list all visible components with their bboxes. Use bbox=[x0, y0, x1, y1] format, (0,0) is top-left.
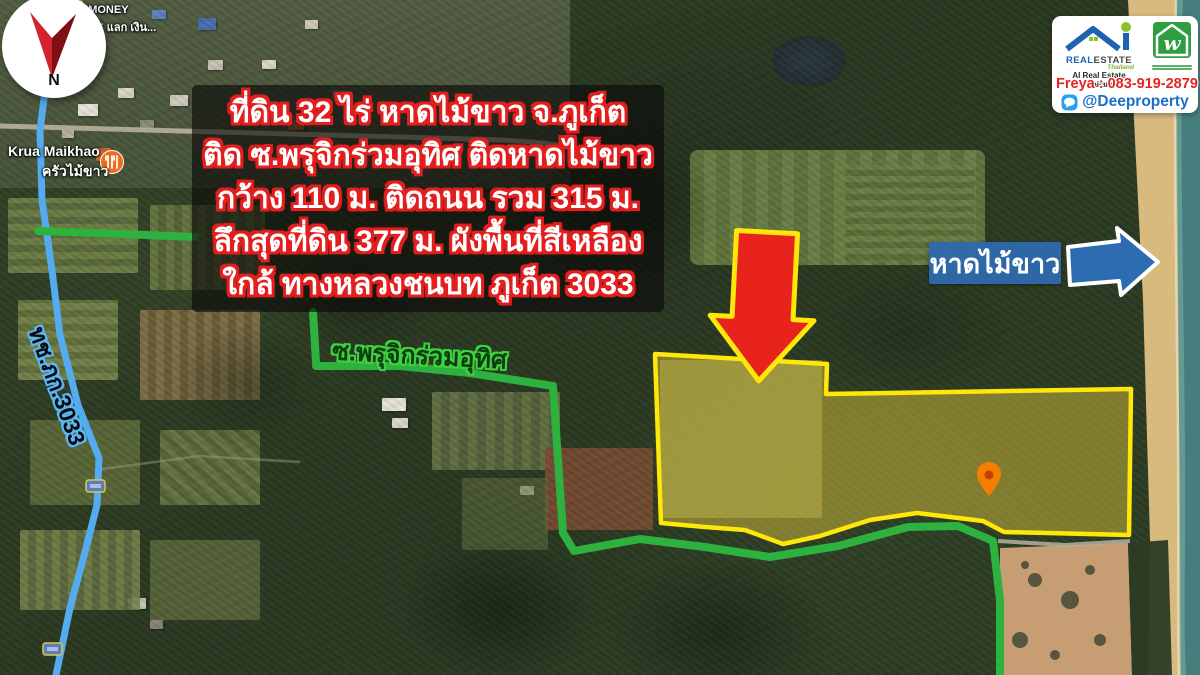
w-letter: w bbox=[1163, 31, 1181, 55]
w-logo-subtext-line bbox=[1152, 68, 1192, 70]
poi-restaurant-name-en: Krua Maikhao bbox=[8, 143, 100, 159]
line-app-icon bbox=[1061, 94, 1078, 111]
w-house-logo: w bbox=[1150, 21, 1194, 71]
land-plot-outline bbox=[655, 354, 1131, 544]
farm-track bbox=[95, 456, 300, 470]
shore-trees bbox=[1128, 540, 1172, 675]
info-line-3: กว้าง 110 ม. ติดถนน รวม 315 ม. bbox=[217, 177, 639, 220]
sand-clearing bbox=[1000, 543, 1132, 675]
info-line-5: ใกล้ ทางหลวงชนบท ภูเก็ต 3033 bbox=[222, 263, 633, 306]
satellite-map: P MONEY HANGE แลก เงิน... Krua Maikhao ค… bbox=[0, 0, 1200, 675]
branding-card: REALESTATE Thailand AI Real Estate Thail… bbox=[1052, 16, 1198, 113]
info-line-1: ที่ดิน 32 ไร่ หาดไม้ขาว จ.ภูเก็ต bbox=[230, 91, 626, 134]
beach-label: หาดไม้ขาว bbox=[929, 242, 1061, 284]
north-compass-icon: N bbox=[2, 0, 106, 98]
route-shield bbox=[86, 480, 105, 492]
contact-phone: Freya : 083-919-2879 bbox=[1056, 76, 1194, 92]
compass-north-letter: N bbox=[2, 72, 106, 90]
listing-info-box: ที่ดิน 32 ไร่ หาดไม้ขาว จ.ภูเก็ต ติด ซ.พ… bbox=[192, 85, 664, 312]
route-green-north bbox=[313, 312, 316, 362]
brand-real: REAL bbox=[1066, 55, 1093, 66]
route-shield bbox=[43, 643, 62, 655]
info-line-2: ติด ซ.พรุจิกร่วมอุทิศ ติดหาดไม้ขาว bbox=[203, 134, 653, 177]
realestate-house-icon bbox=[1059, 21, 1139, 53]
w-logo-subtext-line bbox=[1152, 65, 1192, 67]
line-id: @Deeproperty bbox=[1082, 93, 1188, 111]
w-house-icon: w bbox=[1152, 21, 1192, 59]
poi-restaurant-name-th: ครัวไม้ขาว bbox=[42, 161, 108, 183]
route-green-west bbox=[38, 231, 195, 237]
info-line-4: ลึกสุดที่ดิน 377 ม. ผังพื้นที่สีเหลือง bbox=[214, 220, 643, 263]
